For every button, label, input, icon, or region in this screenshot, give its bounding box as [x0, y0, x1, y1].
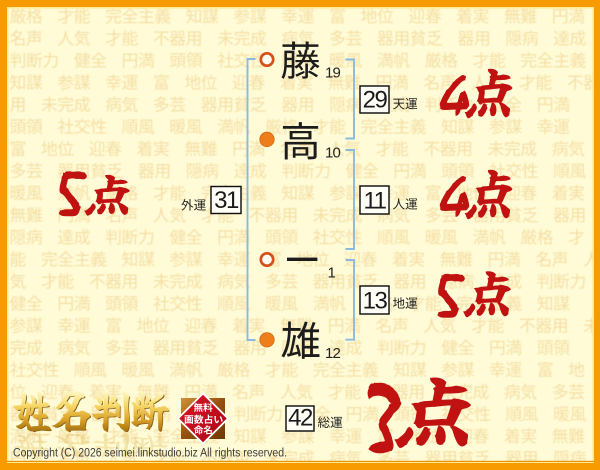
svg-text:19: 19 — [325, 65, 341, 82]
svg-text:13: 13 — [363, 288, 388, 315]
svg-text:42: 42 — [288, 405, 313, 432]
svg-text:10: 10 — [325, 145, 341, 162]
svg-text:29: 29 — [363, 87, 388, 114]
svg-text:12: 12 — [325, 345, 341, 362]
svg-text:11: 11 — [364, 188, 387, 215]
svg-text:1: 1 — [328, 265, 336, 282]
svg-text:Copyright (C) 2026 seimei.link: Copyright (C) 2026 seimei.linkstudio.biz… — [13, 446, 287, 460]
svg-text:31: 31 — [214, 187, 239, 214]
